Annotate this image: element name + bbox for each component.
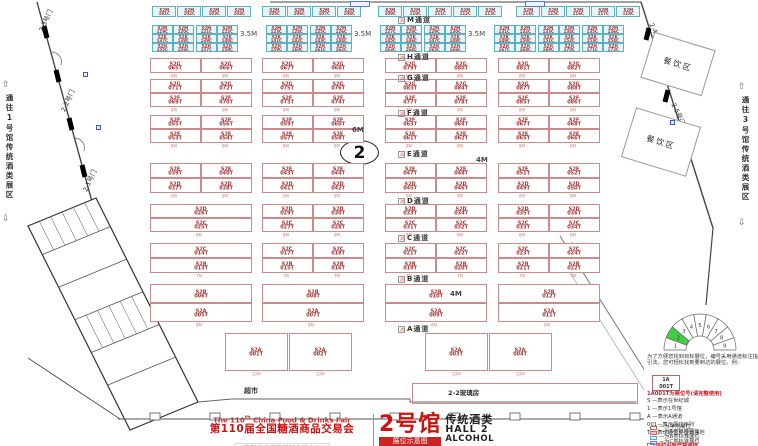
- booth-cell: S2G084T: [436, 79, 487, 93]
- booth-dim-label: 8M: [283, 108, 289, 113]
- booth-dim-label: 8M: [222, 144, 228, 149]
- arrow-up-icon: ⇧: [2, 80, 10, 90]
- booth-label: S2A004T: [514, 348, 528, 357]
- booth-dim-label: 10M: [516, 372, 525, 377]
- booth-cell: S2G071T: [150, 79, 201, 93]
- booth-dim-label: 8M: [457, 74, 463, 79]
- booth-cell: S2F086T: [549, 93, 600, 107]
- booth-cell: S2M112C: [453, 6, 477, 17]
- booth-cell: S2A007T: [262, 303, 364, 322]
- booth-cell: S2B010T: [385, 284, 487, 303]
- booth-cell: S2G080T: [436, 58, 487, 73]
- booth-cell: S2H157C: [196, 43, 217, 52]
- booth-cell: S2M135C: [582, 25, 603, 34]
- booth-label: S2F063T: [404, 118, 418, 127]
- gap-dimension-label: 3.5M: [468, 30, 485, 38]
- booth-cell: S2K146C: [401, 34, 422, 43]
- booth-label: S2H171C: [587, 44, 598, 51]
- booth-label: S2C022T: [455, 246, 469, 255]
- door-marker-icon: [350, 1, 370, 7]
- booth-cell: S2M105C: [262, 6, 286, 17]
- floor-plan: ⇧ 通往1号馆传统酒类展区 ⇩ ⇧ 通往3号馆传统酒类展区 ⇩ 2 超市 2-2…: [0, 0, 758, 446]
- booth-label: S2C031T: [404, 221, 418, 230]
- booth-cell: S2C033T: [498, 218, 549, 232]
- booth-cell: S2G076T: [313, 79, 364, 93]
- aisle-label-text: A通道: [407, 324, 429, 334]
- booth-label: S2A002T: [314, 348, 328, 357]
- booth-cell: S2E066T: [549, 129, 600, 143]
- booth-dim-label: 8M: [519, 194, 525, 199]
- market-label: 超市: [244, 386, 258, 396]
- booth-cell: S2M131C: [494, 25, 515, 34]
- booth-cell: S2C031T: [385, 218, 436, 232]
- booth-cell: S2E062T: [436, 129, 487, 143]
- booth-cell: S2D049T: [498, 178, 549, 193]
- booth-label: S2G084T: [455, 82, 469, 91]
- arrow-down-icon: ⇩: [738, 218, 746, 228]
- booth-cell: S2D038T: [201, 178, 252, 193]
- hall-category-en: ALCOHOL: [445, 435, 494, 444]
- booth-cell: S2M104C: [227, 6, 251, 17]
- booth-label: S2C032T: [455, 221, 469, 230]
- booth-label: S2M104C: [233, 8, 244, 15]
- booth-label: S2H155C: [157, 44, 168, 51]
- booth-cell: S2F085T: [498, 93, 549, 107]
- booth-label: S2D035T: [517, 207, 531, 216]
- booth-cell: S2F073T: [262, 93, 313, 107]
- booth-label: S2C021T: [404, 246, 418, 255]
- booth-dim-label: 8M: [570, 108, 576, 113]
- booth-cell: S2E039T: [150, 163, 201, 178]
- booth-cell: S2E052T: [549, 163, 600, 178]
- booth-label: S2F086T: [568, 96, 582, 105]
- glass-room-outline: [412, 383, 638, 404]
- booth-cell: S2M118C: [616, 6, 640, 17]
- booth-cell: S2G075T: [262, 79, 313, 93]
- booth-cell: S2K145C: [380, 34, 401, 43]
- booth-label: S2B013T: [194, 261, 208, 270]
- booth-dim-label: 7M: [457, 274, 463, 279]
- booth-number-example: 1A 001T: [652, 375, 680, 391]
- booth-dim-label: 8M: [519, 108, 525, 113]
- booth-label: S2E066T: [568, 132, 582, 141]
- booth-label: S2E048T: [455, 166, 469, 175]
- booth-cell: S2D046T: [436, 178, 487, 193]
- booth-label: S2K149C: [499, 35, 510, 42]
- booth-label: S2A001T: [250, 348, 264, 357]
- aisle-label-text: F通道: [407, 108, 429, 118]
- booth-label: S2M127C: [385, 26, 396, 33]
- booth-label: S2K145C: [385, 35, 396, 42]
- booth-cell: S2M108C: [337, 6, 361, 17]
- booth-label: S2D037T: [169, 181, 183, 190]
- booth-cell: S2E048T: [436, 163, 487, 178]
- booth-label: S2B019T: [404, 261, 418, 270]
- booth-cell: S2A003T: [425, 333, 488, 371]
- booth-label: S2H162C: [336, 44, 347, 51]
- booth-dim-label: 8M: [334, 74, 340, 79]
- booth-cell: S2F059T: [262, 115, 313, 129]
- booth-cell: S2C023T: [498, 243, 549, 258]
- booth-dim-label: 7M: [334, 274, 340, 279]
- booth-cell: S2B013T: [150, 258, 252, 273]
- booth-label: S2D034T: [455, 207, 469, 216]
- booth-label: S2M123C: [271, 26, 282, 33]
- booth-cell: S2C028T: [313, 218, 364, 232]
- booth-dim-label: 8M: [519, 233, 525, 238]
- booth-label: S2C017T: [281, 246, 295, 255]
- booth-label: S2G076T: [332, 82, 346, 91]
- booth-dim-label: 8M: [457, 233, 463, 238]
- booth-cell: S2E047T: [385, 163, 436, 178]
- booth-cell: S2E065T: [498, 129, 549, 143]
- aisle-label-text: D通道: [407, 196, 430, 206]
- booth-label: S2G088T: [568, 82, 582, 91]
- booth-cell: S2K138C: [173, 34, 194, 43]
- booth-cell: S2H160C: [287, 43, 308, 52]
- booth-label: S2K144C: [336, 35, 347, 42]
- booth-label: S2C014T: [194, 246, 208, 255]
- booth-label: S2K141C: [271, 35, 282, 42]
- booth-dim-label: 8M: [283, 74, 289, 79]
- aisle-label-text: E通道: [407, 149, 429, 159]
- booth-cell: S2M102C: [177, 6, 201, 17]
- booth-cell: S2D029T: [262, 204, 313, 218]
- booth-label: S2D033T: [404, 207, 418, 216]
- booth-label: S2F056T: [220, 118, 234, 127]
- booth-cell: S2H156C: [173, 43, 194, 52]
- booth-label: S2K150C: [520, 35, 531, 42]
- booth-label: S2E044T: [332, 166, 346, 175]
- aisle-label: 消E通道: [398, 149, 429, 159]
- dial-segment-label: 2: [677, 336, 680, 342]
- swatch-icon: [650, 436, 657, 440]
- booth-cell: S2D036T: [549, 204, 600, 218]
- hydrant-icon: 消: [398, 276, 405, 283]
- booth-label: S2F069T: [169, 96, 183, 105]
- booth-cell: S2E054T: [201, 129, 252, 143]
- booth-cell: S2H166C: [445, 43, 466, 52]
- booth-cell: S2M128C: [401, 25, 422, 34]
- booth-label: S2F070T: [220, 96, 234, 105]
- booth-cell: S2B008T: [262, 284, 364, 303]
- booth-cell: S2F068T: [549, 115, 600, 129]
- booth-cell: S2C014T: [150, 243, 252, 258]
- booth-label: S2H161C: [315, 44, 326, 51]
- booth-label: S2D046T: [455, 181, 469, 190]
- booth-label: S2H168C: [520, 44, 531, 51]
- booth-label: S2K154C: [608, 35, 619, 42]
- booth-dim-label: 8M: [570, 194, 576, 199]
- booth-label: S2M108C: [343, 8, 354, 15]
- booth-label: S2D049T: [517, 181, 531, 190]
- booth-label: S2K143C: [315, 35, 326, 42]
- booth-cell: S2D033T: [385, 204, 436, 218]
- booth-cell: S2M129C: [424, 25, 445, 34]
- booth-cell: S2F064T: [436, 115, 487, 129]
- booth-label: S2B016T: [332, 261, 346, 270]
- corridor-label-left: 通往1号馆传统酒类展区: [2, 94, 15, 200]
- booth-label: S2G068T: [332, 61, 346, 70]
- booth-dim-label: 8M: [222, 108, 228, 113]
- booth-label: S2M132C: [520, 26, 531, 33]
- booth-dim-label: 8M: [283, 144, 289, 149]
- layout-badge: 展位示意图: [379, 437, 441, 446]
- booth-cell: S2D045T: [385, 178, 436, 193]
- booth-label: S2D030T: [332, 207, 346, 216]
- booth-label: S2H172C: [608, 44, 619, 51]
- booth-label: S2M136C: [608, 26, 619, 33]
- booth-label: S2B020T: [455, 261, 469, 270]
- booth-cell: S2G087T: [498, 79, 549, 93]
- door-marker-icon: [525, 1, 545, 7]
- booth-dim-label: 8M: [171, 194, 177, 199]
- hydrant-icon: 消: [398, 235, 405, 242]
- booth-dim-label: 10M: [316, 372, 325, 377]
- booth-cell: S2M114C: [516, 6, 540, 17]
- booth-label: S2F085T: [517, 96, 531, 105]
- booth-label: S2M119C: [157, 26, 168, 33]
- booth-cell: S2E061T: [385, 129, 436, 143]
- booth-cell: S2H162C: [331, 43, 352, 52]
- booth-label: S2K140C: [222, 35, 233, 42]
- booth-cell: S2H167C: [494, 43, 515, 52]
- booth-cell: S2E040T: [201, 163, 252, 178]
- hydrant-icon: 消: [398, 17, 405, 24]
- booth-label: S2A007T: [306, 308, 320, 317]
- booth-cell: S2A002T: [289, 333, 352, 371]
- booth-cell: S2F067T: [498, 115, 549, 129]
- booth-dim-label: 7M: [283, 274, 289, 279]
- booth-label: S2G071T: [169, 82, 183, 91]
- swatch-icon: [650, 431, 657, 435]
- hydrant-icon: 消: [398, 110, 405, 117]
- booth-cell: S2D026T: [150, 204, 252, 218]
- booth-label: S2A009T: [429, 308, 443, 317]
- booth-label: S2E047T: [404, 166, 418, 175]
- booth-label: S2G081T: [517, 61, 531, 70]
- booth-label: S2F059T: [281, 118, 295, 127]
- booth-label: S2B010T: [429, 289, 443, 298]
- booth-label: S2H167C: [499, 44, 510, 51]
- hall-title: 2号馆 展位示意图 传统酒类 HALL 2 ALCOHOL: [379, 414, 494, 446]
- booth-cell: S2K142C: [287, 34, 308, 43]
- booth-label: S2M133C: [543, 26, 554, 33]
- booth-cell: S2K140C: [217, 34, 238, 43]
- booth-cell: S2K147C: [424, 34, 445, 43]
- booth-label: S2E052T: [568, 166, 582, 175]
- booth-cell: S2M111C: [428, 6, 452, 17]
- booth-label: S2D038T: [220, 181, 234, 190]
- booth-label: S2E062T: [455, 132, 469, 141]
- booth-cell: S2E051T: [498, 163, 549, 178]
- booth-label: S2K138C: [178, 35, 189, 42]
- booth-label: S2E065T: [517, 132, 531, 141]
- dimension-label: 4M: [476, 156, 488, 164]
- booth-dim-label: 8M: [171, 74, 177, 79]
- booth-cell: S2H172C: [603, 43, 624, 52]
- booth-dim-label: 8M: [519, 144, 525, 149]
- booth-cell: S2C024T: [549, 243, 600, 258]
- booth-dim-label: 8M: [196, 233, 202, 238]
- booth-label: S2D050T: [568, 181, 582, 190]
- booth-cell: S2M133C: [538, 25, 559, 34]
- booth-label: S2B008T: [306, 289, 320, 298]
- booth-cell: S2G082T: [549, 58, 600, 73]
- booth-label: S2F068T: [568, 118, 582, 127]
- hall-locator-dial: 123456789: [652, 308, 748, 354]
- booth-dim-label: 8M: [457, 144, 463, 149]
- dial-segment-label: 5: [698, 323, 701, 329]
- booth-cell: S2E053T: [150, 129, 201, 143]
- booth-dim-label: 8M: [544, 323, 550, 328]
- aisle-label: 消C通道: [398, 233, 429, 243]
- booth-cell: S2B012T: [498, 284, 600, 303]
- booth-cell: S2B016T: [313, 258, 364, 273]
- booth-cell: S2H169C: [538, 43, 559, 52]
- booth-label: S2E051T: [517, 166, 531, 175]
- arrow-down-icon: ⇩: [2, 214, 10, 224]
- aisle-label: 消H通道: [398, 52, 430, 62]
- hydrant-icon: 消: [398, 75, 405, 82]
- booth-cell: S2K152C: [559, 34, 580, 43]
- booth-cell: S2M123C: [266, 25, 287, 34]
- booth-label: S2M134C: [564, 26, 575, 33]
- booth-dim-label: 10M: [452, 372, 461, 377]
- booth-label: S2G065T: [169, 61, 183, 70]
- booth-cell: S2K149C: [494, 34, 515, 43]
- booth-cell: S2D037T: [150, 178, 201, 193]
- booth-label: S2C034T: [568, 221, 582, 230]
- aisle-label-text: M通道: [407, 15, 431, 25]
- booth-cell: S2K144C: [331, 34, 352, 43]
- booth-cell: S2B019T: [385, 258, 436, 273]
- booth-dim-label: 8M: [406, 144, 412, 149]
- booth-cell: S2C034T: [549, 218, 600, 232]
- booth-cell: S2M125C: [310, 25, 331, 34]
- booth-cell: S2M126C: [331, 25, 352, 34]
- booth-label: S2K147C: [429, 35, 440, 42]
- booth-label: S2D026T: [194, 207, 208, 216]
- booth-label: S2G066T: [220, 61, 234, 70]
- booth-cell: S2F078T: [436, 93, 487, 107]
- booth-label: S2M111C: [434, 8, 445, 15]
- gap-dimension-label: 3.5M: [354, 30, 371, 38]
- booth-label: S2H158C: [222, 44, 233, 51]
- booth-label: S2M113C: [484, 8, 495, 15]
- booth-label: S2M122C: [222, 26, 233, 33]
- booth-label: S2H169C: [543, 44, 554, 51]
- dial-segment-label: 3: [682, 329, 685, 335]
- booth-label: S2D042T: [332, 181, 346, 190]
- booth-cell: S2B015T: [262, 258, 313, 273]
- booth-label: S2B015T: [281, 261, 295, 270]
- booth-cell: S2C025T: [150, 218, 252, 232]
- booth-dim-label: 7M: [519, 274, 525, 279]
- booth-cell: S2D034T: [436, 204, 487, 218]
- booth-cell: S2M130C: [445, 25, 466, 34]
- booth-label: S2M124C: [292, 26, 303, 33]
- dial-segment-label: 1: [674, 344, 677, 350]
- booth-dim-label: 8M: [431, 323, 437, 328]
- booth-label: S2M114C: [522, 8, 533, 15]
- corridor-label-right: 通往3号馆传统酒类展区: [738, 96, 751, 202]
- booth-label: S2M102C: [183, 8, 194, 15]
- booth-cell: S2A009T: [385, 303, 487, 322]
- booth-label: S2H166C: [450, 44, 461, 51]
- booth-cell: S2M120C: [173, 25, 194, 34]
- glass-room-label: 2-2玻璃房: [448, 387, 479, 397]
- aisle-label-text: G通道: [407, 73, 430, 83]
- booth-cell: S2F074T: [313, 93, 364, 107]
- booth-cell: S2K148C: [445, 34, 466, 43]
- booth-cell: S2M115C: [541, 6, 565, 17]
- booth-cell: S2K137C: [152, 34, 173, 43]
- dial-segment-label: 6: [707, 325, 710, 331]
- fair-title-cn: 第110届全国糖酒商品交易会: [196, 424, 368, 435]
- booth-dim-label: 8M: [457, 108, 463, 113]
- booth-cell: S2M132C: [515, 25, 536, 34]
- booth-label: S2M117C: [597, 8, 608, 15]
- booth-label: S2E057T: [281, 132, 295, 141]
- fair-title: The 110th China Food & Drinks Fair 第110届…: [196, 414, 368, 446]
- booth-label: S2G072T: [220, 82, 234, 91]
- booth-label: S2F067T: [517, 118, 531, 127]
- booth-cell: S2K151C: [538, 34, 559, 43]
- booth-cell: S2G072T: [201, 79, 252, 93]
- booth-cell: S2M103C: [202, 6, 226, 17]
- booth-label: S2G075T: [281, 82, 295, 91]
- booth-cell: S2H158C: [217, 43, 238, 52]
- booth-label: S2D041T: [281, 181, 295, 190]
- booth-dim-label: 8M: [308, 323, 314, 328]
- booth-cell: S2H168C: [515, 43, 536, 52]
- booth-label: S2M135C: [587, 26, 598, 33]
- booth-cell: S2K143C: [310, 34, 331, 43]
- booth-label: S2F060T: [332, 118, 346, 127]
- booth-cell: S2H164C: [401, 43, 422, 52]
- booth-label: S2F073T: [281, 96, 295, 105]
- booth-label: S2H156C: [178, 44, 189, 51]
- legend-key-line: 1 —表示1号馆: [647, 406, 734, 411]
- booth-label: S2M101C: [158, 8, 169, 15]
- booth-label: S2K153C: [587, 35, 598, 42]
- booth-label: S2E058T: [332, 132, 346, 141]
- booth-dim-label: 8M: [171, 108, 177, 113]
- hall-name-cn: 2号馆: [379, 414, 441, 436]
- booth-cell: S2C022T: [436, 243, 487, 258]
- legend-key-line: S —表示在世纪城: [647, 398, 734, 403]
- aisle-label: 消B通道: [398, 274, 429, 284]
- booth-label: S2C027T: [281, 221, 295, 230]
- booth-label: S2M128C: [406, 26, 417, 33]
- booth-label: S2E039T: [169, 166, 183, 175]
- booth-cell: S2M106C: [287, 6, 311, 17]
- booth-label: S2D029T: [281, 207, 295, 216]
- booth-cell: S2A005T: [150, 303, 252, 322]
- booth-cell: S2B006T: [150, 284, 252, 303]
- booth-cell: S2G065T: [150, 58, 201, 73]
- booth-label: S2K137C: [157, 35, 168, 42]
- hydrant-icon: [670, 120, 675, 125]
- booth-cell: S2C021T: [385, 243, 436, 258]
- booth-label: S2F077T: [404, 96, 418, 105]
- booth-cell: S2C017T: [262, 243, 313, 258]
- booth-cell: S2H163C: [380, 43, 401, 52]
- booth-cell: S2A001T: [225, 333, 288, 371]
- legend: 123456789 为了方便您找到目标展位，编号采用通道标注指引法，您可轻松找到…: [644, 306, 758, 446]
- booth-label: S2F055T: [169, 118, 183, 127]
